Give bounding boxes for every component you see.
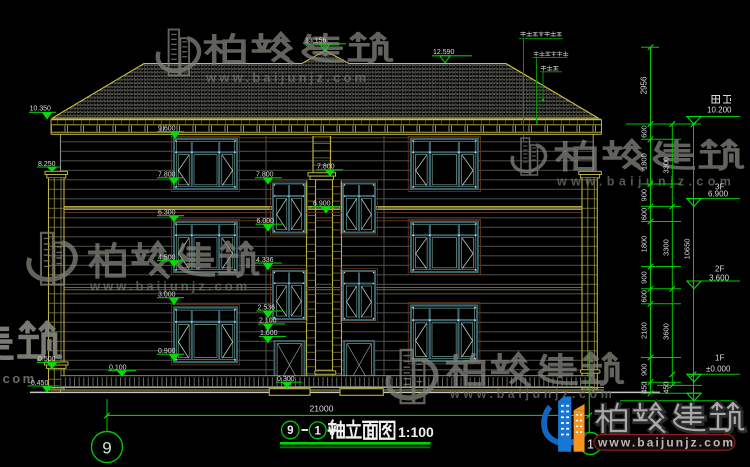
- svg-text:1: 1: [587, 437, 594, 452]
- svg-text:10.200: 10.200: [707, 106, 732, 115]
- svg-text:±0.000: ±0.000: [706, 365, 731, 374]
- svg-text:600: 600: [640, 290, 649, 303]
- svg-text:9: 9: [287, 425, 293, 437]
- svg-text:www.baijunjz.com: www.baijunjz.com: [556, 175, 735, 189]
- svg-text:9: 9: [102, 439, 111, 458]
- svg-text:600: 600: [640, 208, 649, 221]
- svg-text:1.600: 1.600: [260, 330, 278, 337]
- svg-text:3.000: 3.000: [158, 291, 176, 298]
- svg-text:900: 900: [640, 364, 649, 377]
- svg-text:7.800: 7.800: [158, 172, 176, 179]
- svg-text:www.baijunjz.com: www.baijunjz.com: [205, 70, 369, 85]
- svg-text:1F: 1F: [715, 354, 724, 363]
- svg-text:3300: 3300: [661, 157, 670, 174]
- svg-text:6.900: 6.900: [313, 200, 331, 207]
- svg-text:8.250: 8.250: [38, 161, 56, 168]
- svg-text:0.500: 0.500: [38, 356, 56, 363]
- svg-text:1800: 1800: [640, 153, 649, 170]
- svg-text:2100: 2100: [640, 322, 649, 339]
- svg-text:1800: 1800: [640, 236, 649, 253]
- svg-text:3600: 3600: [661, 323, 670, 340]
- svg-text:7.800: 7.800: [256, 172, 274, 179]
- svg-text:0.100: 0.100: [109, 364, 127, 371]
- svg-text:2F: 2F: [715, 265, 724, 274]
- svg-text:4.336: 4.336: [256, 257, 274, 264]
- svg-text:10650: 10650: [683, 239, 692, 260]
- svg-text:2956: 2956: [640, 76, 649, 94]
- svg-text:6.900: 6.900: [708, 190, 729, 199]
- svg-text:2.100: 2.100: [259, 318, 277, 325]
- svg-text:3300: 3300: [661, 239, 670, 256]
- svg-text:6.300: 6.300: [158, 209, 176, 216]
- svg-text:10.350: 10.350: [30, 106, 52, 113]
- svg-text:www.baijunjz.com: www.baijunjz.com: [597, 436, 735, 450]
- svg-text:12.590: 12.590: [433, 49, 455, 56]
- svg-text:0.300: 0.300: [277, 376, 295, 383]
- svg-text:450: 450: [663, 382, 670, 394]
- svg-text:900: 900: [640, 189, 649, 202]
- svg-text:6.000: 6.000: [257, 218, 275, 225]
- svg-text:7.800: 7.800: [317, 164, 335, 171]
- svg-text:13.156: 13.156: [305, 38, 327, 45]
- svg-text:21000: 21000: [310, 404, 334, 414]
- svg-text:2.536: 2.536: [258, 305, 276, 312]
- svg-text:600: 600: [640, 125, 649, 138]
- svg-text:900: 900: [640, 271, 649, 284]
- svg-text:1:100: 1:100: [398, 424, 434, 440]
- svg-text:4.500: 4.500: [158, 254, 176, 261]
- svg-text:1: 1: [314, 425, 321, 437]
- svg-text:www.baijunjz.com: www.baijunjz.com: [449, 387, 615, 401]
- svg-text:0.900: 0.900: [158, 348, 176, 355]
- svg-text:450: 450: [642, 382, 649, 394]
- svg-text:9.600: 9.600: [158, 125, 176, 132]
